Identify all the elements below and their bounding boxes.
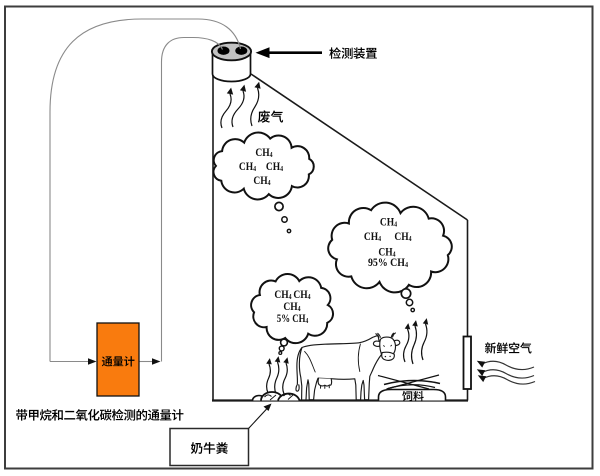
svg-text:5% CH4: 5% CH4 (277, 312, 309, 325)
svg-text:95% CH4: 95% CH4 (368, 256, 408, 269)
